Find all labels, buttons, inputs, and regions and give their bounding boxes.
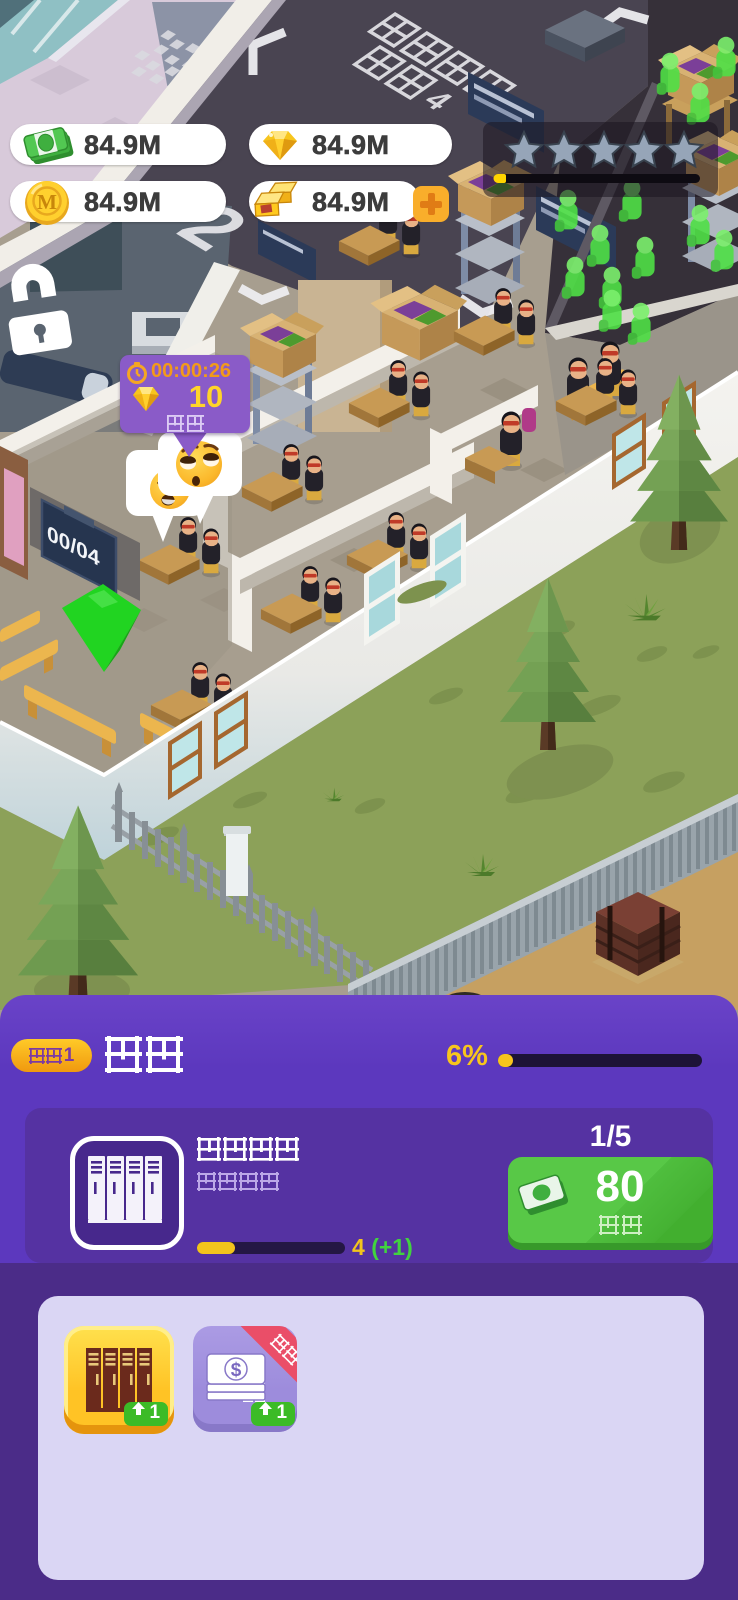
svg-text:M: M	[37, 190, 57, 214]
svg-text:$: $	[231, 1360, 242, 1381]
